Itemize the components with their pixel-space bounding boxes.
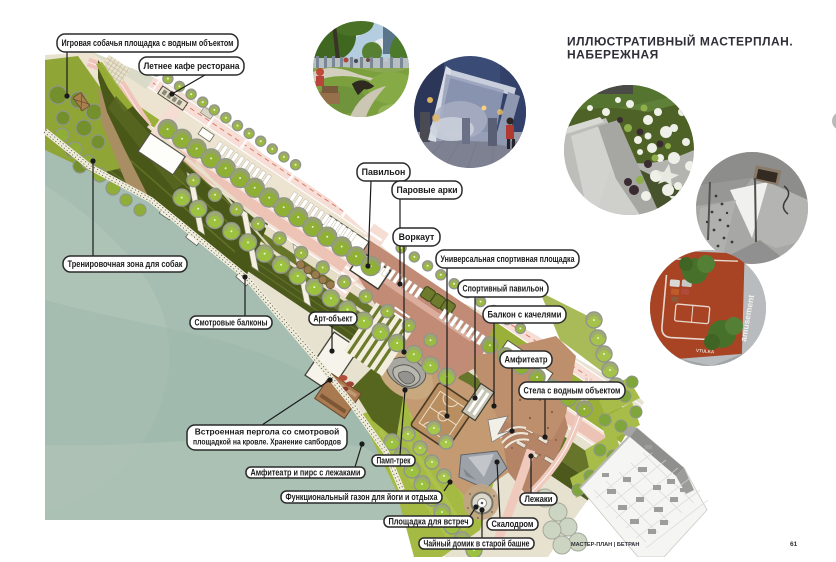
svg-text:Площадка для встреч: Площадка для встреч — [389, 516, 469, 526]
svg-text:Арт-объект: Арт-объект — [314, 313, 354, 323]
svg-text:Тренировочная зона для собак: Тренировочная зона для собак — [68, 259, 184, 269]
svg-text:Воркаут: Воркаут — [399, 232, 435, 242]
svg-text:Амфитеатр: Амфитеатр — [505, 354, 549, 364]
svg-text:Паровые арки: Паровые арки — [397, 185, 458, 195]
svg-text:Амфитеатр и пирс с лежаками: Амфитеатр и пирс с лежаками — [251, 467, 361, 477]
svg-text:Стела с водным объектом: Стела с водным объектом — [524, 385, 621, 395]
svg-text:Павильон: Павильон — [362, 167, 406, 177]
svg-text:Функциональный газон для йоги: Функциональный газон для йоги и отдыха — [286, 492, 438, 502]
svg-text:Балкон с качелями: Балкон с качелями — [488, 309, 562, 319]
svg-text:Памп-трек: Памп-трек — [377, 455, 411, 465]
svg-text:Универсальная спортивная площа: Универсальная спортивная площадка — [441, 254, 575, 264]
svg-text:Спортивный павильон: Спортивный павильон — [463, 283, 544, 293]
svg-text:Лежаки: Лежаки — [525, 494, 553, 504]
svg-text:НАБЕРЕЖНАЯ: НАБЕРЕЖНАЯ — [567, 48, 659, 62]
svg-text:ИЛЛЮСТРАТИВНЫЙ МАСТЕРПЛАН.: ИЛЛЮСТРАТИВНЫЙ МАСТЕРПЛАН. — [567, 34, 793, 49]
svg-text:Летнее кафе ресторана: Летнее кафе ресторана — [144, 61, 240, 71]
svg-text:Игровая собачья площадка с вод: Игровая собачья площадка с водным объект… — [62, 38, 234, 48]
svg-text:Смотровые балконы: Смотровые балконы — [195, 317, 268, 327]
svg-text:61: 61 — [790, 541, 798, 548]
svg-text:Чайный домик в старой башне: Чайный домик в старой башне — [424, 538, 530, 548]
svg-text:МАСТЕР-ПЛАН | БЕТРАН: МАСТЕР-ПЛАН | БЕТРАН — [571, 542, 639, 548]
svg-text:площадкой на кровле. Хранение: площадкой на кровле. Хранение сапбордов — [193, 437, 341, 447]
svg-text:Встроенная пергола со смотрово: Встроенная пергола со смотровой — [195, 427, 340, 437]
svg-text:Скалодром: Скалодром — [492, 519, 534, 529]
